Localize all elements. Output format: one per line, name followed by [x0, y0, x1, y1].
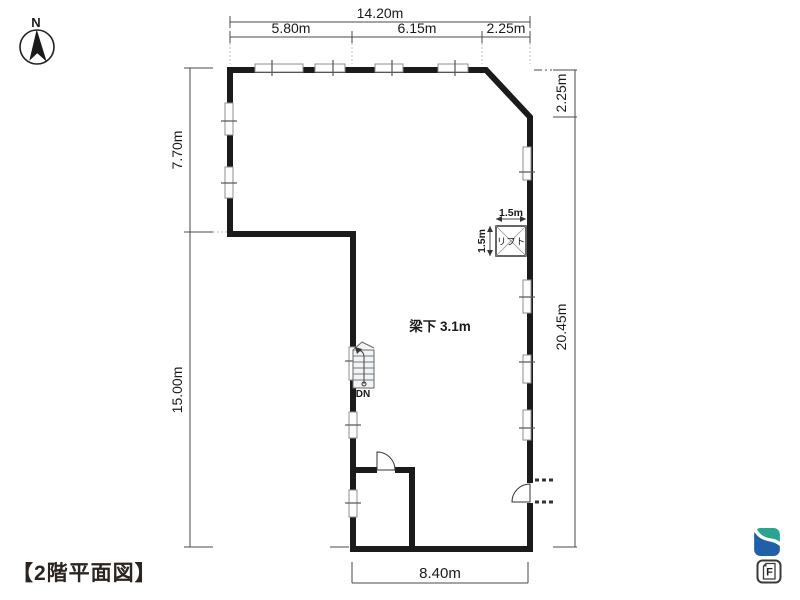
beam-height-label: 梁下 3.1m	[408, 318, 471, 334]
dim-top-seg2: 6.15m	[398, 20, 437, 36]
dimension-left: 7.70m 15.00m	[169, 68, 349, 547]
dim-right-upper: 2.25m	[553, 74, 569, 113]
dim-left-lower: 15.00m	[169, 367, 185, 414]
dim-bottom: 8.40m	[419, 565, 461, 582]
document-f-letter: F	[766, 567, 773, 579]
page-title: 【2階平面図】	[12, 557, 157, 587]
lift-depth-dim: 1.5m	[476, 229, 488, 253]
compass-icon: N	[20, 15, 54, 64]
dim-top-seg3: 2.25m	[487, 20, 526, 36]
dim-top-total: 14.20m	[357, 5, 404, 21]
exterior-door	[512, 480, 555, 503]
dimension-right: 2.25m 20.45m	[534, 70, 577, 547]
dimension-top: 14.20m 5.80m 6.15m 2.25m	[230, 5, 530, 43]
dim-top-seg1: 5.80m	[272, 20, 311, 36]
lift-label: リフト	[497, 237, 526, 248]
interior-door	[377, 452, 395, 470]
lift-width-dim: 1.5m	[499, 207, 523, 219]
dim-left-upper: 7.70m	[169, 131, 185, 170]
compass-north-label: N	[31, 15, 40, 30]
dimension-bottom: 8.40m	[352, 562, 528, 583]
stairs-down-label: DN	[356, 389, 370, 400]
document-f-icon: F	[756, 559, 782, 590]
floor-plan-page: N	[0, 0, 800, 600]
stairs-symbol: DN	[353, 342, 374, 400]
logo-icon	[754, 528, 780, 561]
floor-plan-canvas: N	[0, 0, 800, 600]
lift-box: リフト 1.5m 1.5m	[476, 207, 526, 256]
dim-right-lower: 20.45m	[553, 304, 569, 351]
interior-room-walls	[353, 470, 412, 549]
floor-outline	[230, 70, 530, 549]
